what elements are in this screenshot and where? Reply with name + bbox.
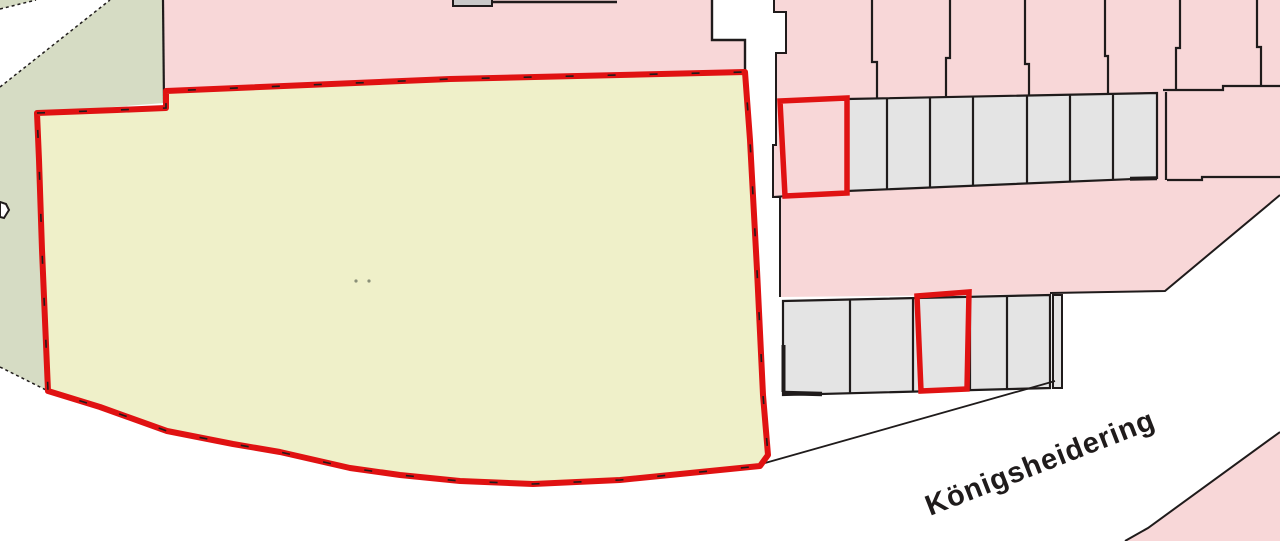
cadastral-map-view[interactable]: Königsheidering: [0, 0, 1280, 541]
map-dot: [354, 279, 357, 282]
highlighted-parcel-main[interactable]: [37, 72, 768, 484]
building-footprint: [453, 0, 492, 6]
garage-sliver: [1053, 295, 1062, 388]
garage-row-outline: [847, 93, 1157, 191]
street-label: Königsheidering: [921, 404, 1160, 522]
map-dot: [367, 279, 370, 282]
residential-block-bottomright: [1125, 432, 1280, 541]
highlighted-parcel-fill[interactable]: [37, 72, 768, 484]
parcel-boundary-line: [163, 0, 164, 103]
map-canvas[interactable]: Königsheidering: [0, 0, 1280, 541]
garage-thick-edge: [1130, 178, 1157, 179]
garage-thick-edge: [784, 393, 822, 394]
garage-row-upper: [847, 93, 1157, 191]
